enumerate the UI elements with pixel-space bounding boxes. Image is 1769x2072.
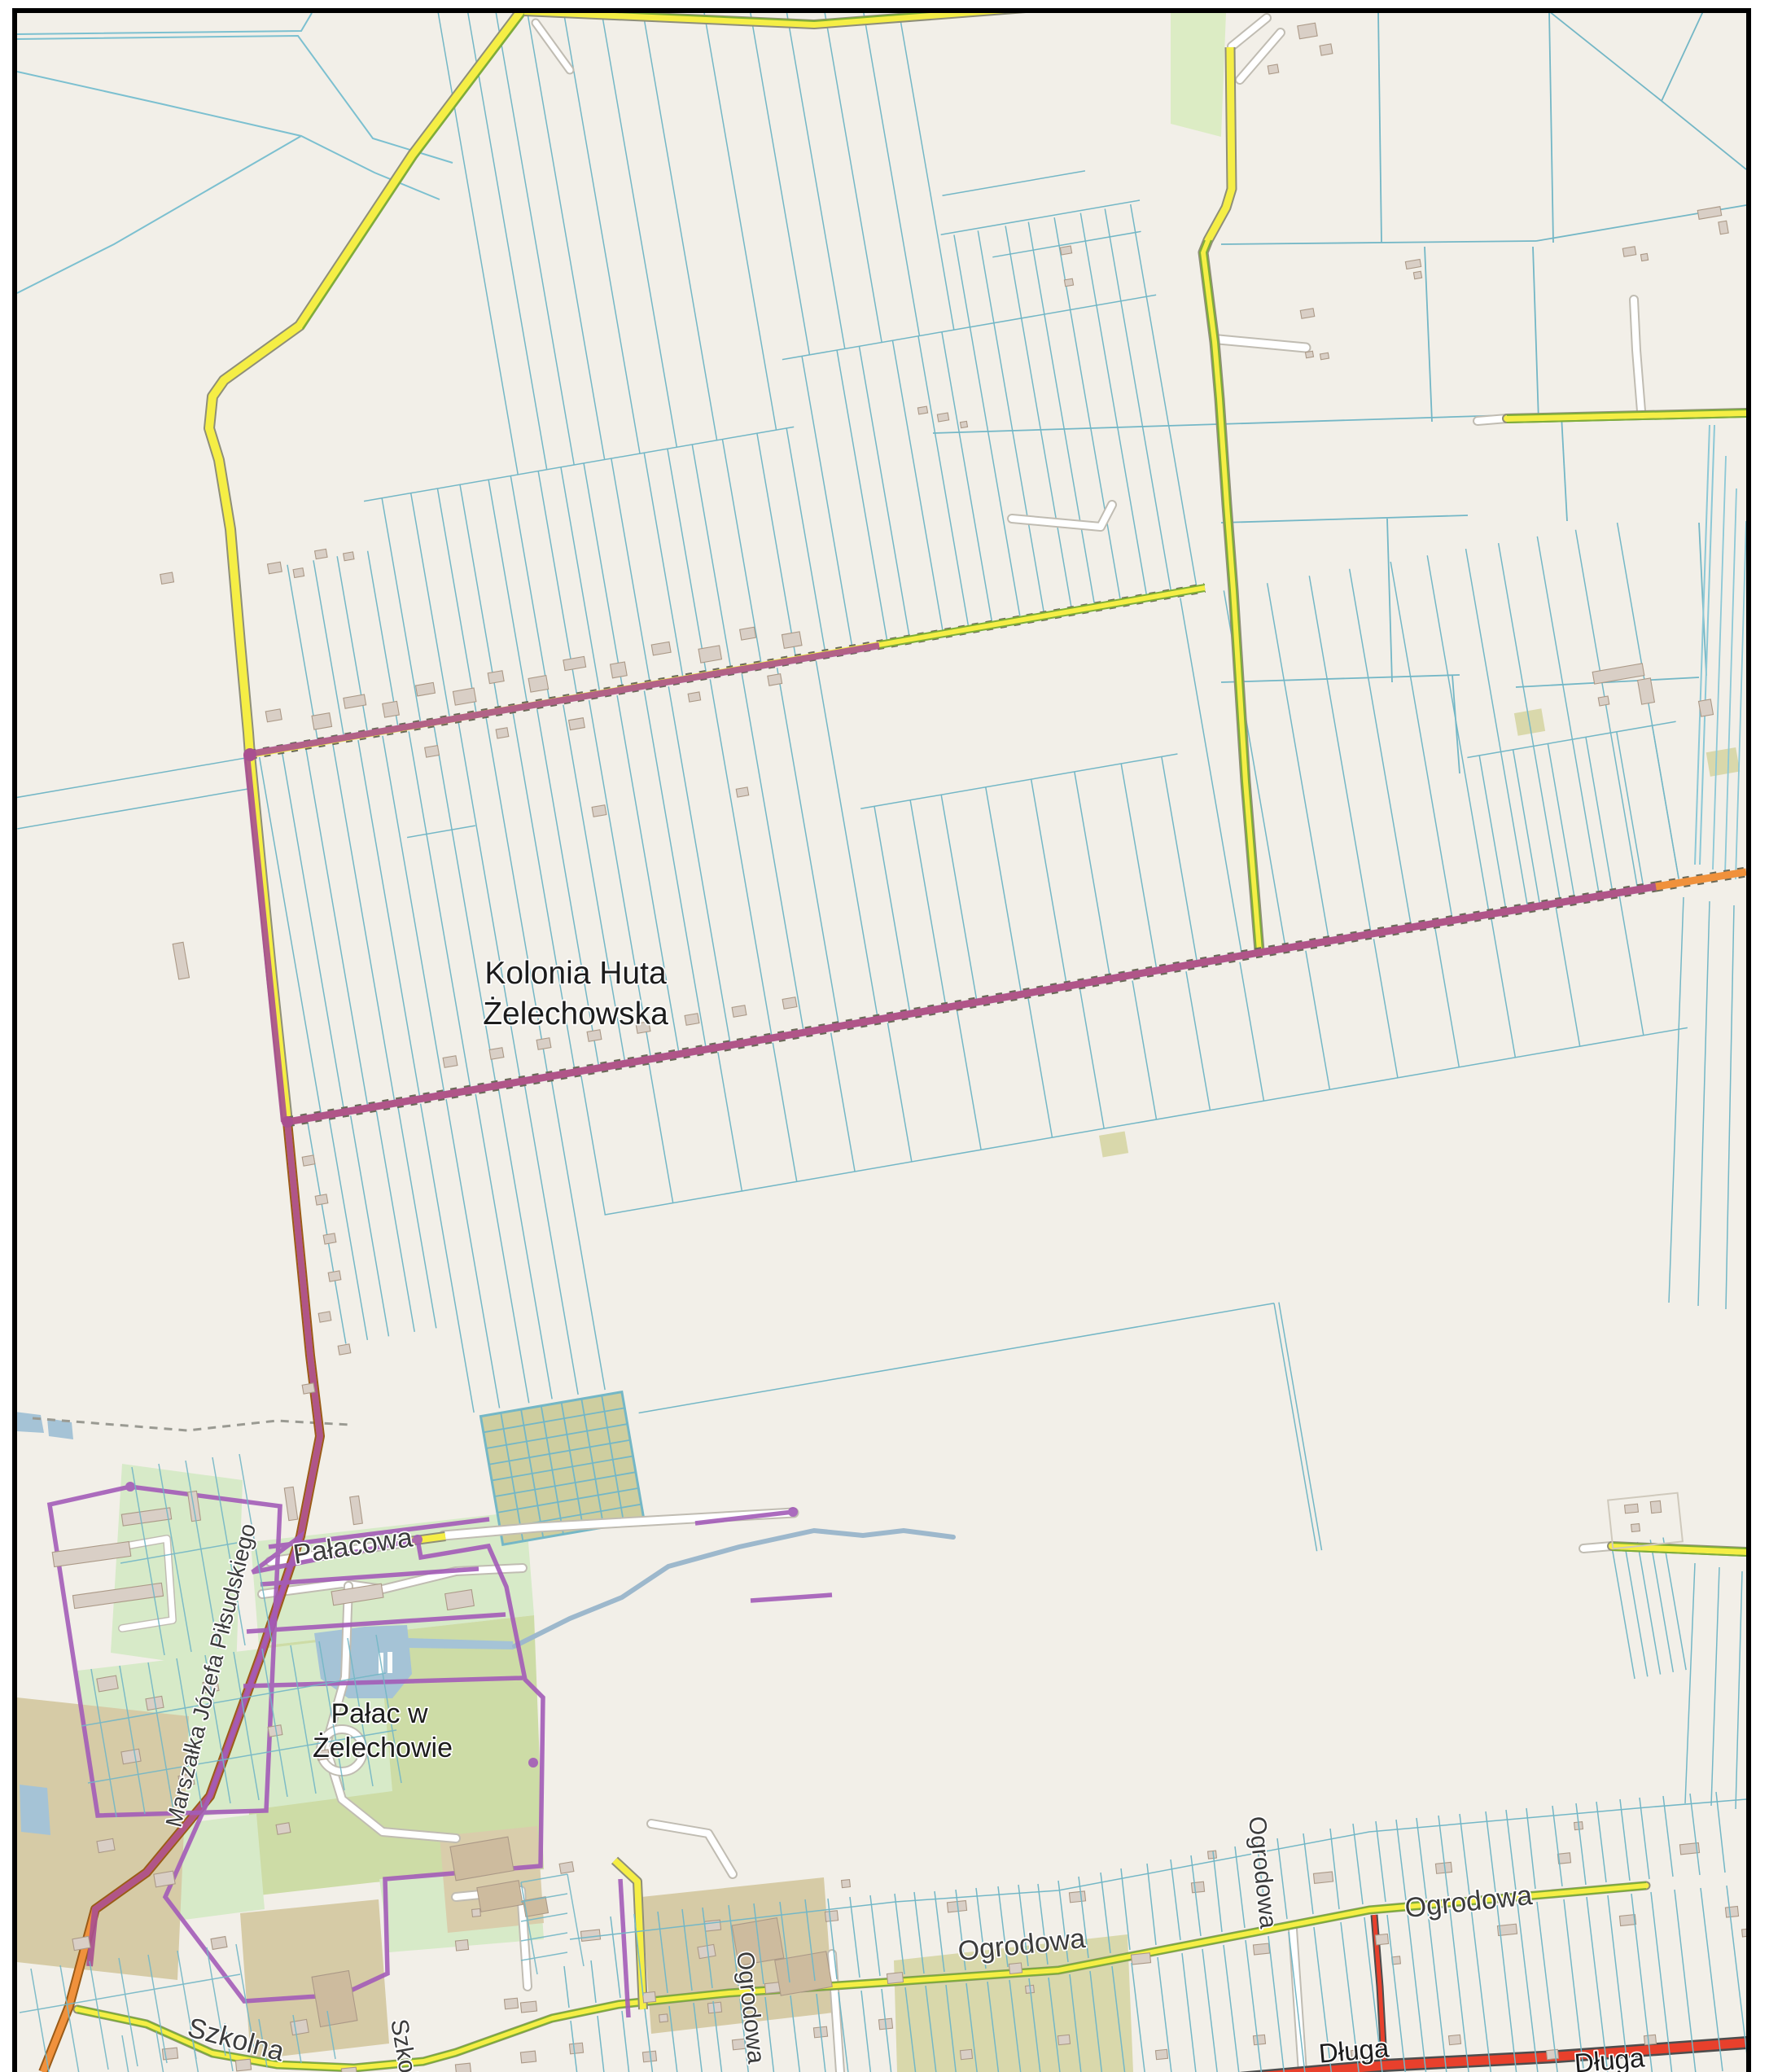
svg-text:Długa: Długa: [1573, 2042, 1646, 2072]
svg-text:Żelechowie: Żelechowie: [313, 1733, 453, 1763]
svg-text:Długa: Długa: [1317, 2032, 1390, 2068]
svg-text:Żelechowska: Żelechowska: [483, 997, 668, 1032]
svg-text:Pałac w: Pałac w: [331, 1698, 427, 1729]
svg-text:Kolonia Huta: Kolonia Huta: [484, 956, 667, 991]
